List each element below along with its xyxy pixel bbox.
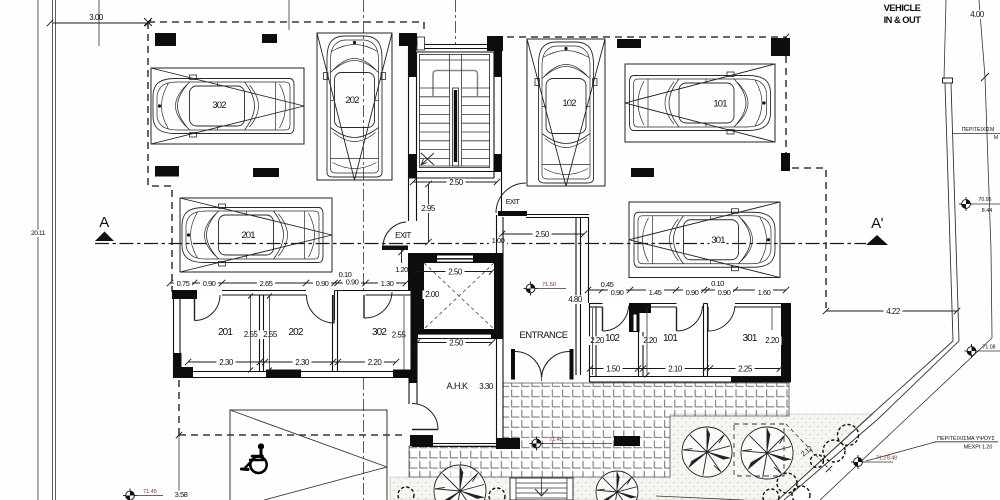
svg-text:302: 302 <box>372 327 387 338</box>
svg-text:EXIT: EXIT <box>506 199 521 206</box>
svg-text:2.20: 2.20 <box>643 336 658 345</box>
svg-text:2.10: 2.10 <box>668 365 683 374</box>
svg-text:2.65: 2.65 <box>260 279 273 288</box>
svg-text:ΠΕΡΙΤΕΙΧΙΣΜ: ΠΕΡΙΤΕΙΧΙΣΜ <box>962 127 995 133</box>
svg-text:2.30: 2.30 <box>219 358 234 367</box>
svg-text:A': A' <box>871 215 884 232</box>
svg-text:ΠΕΡΙΤΕΙΧΙΣΜΑ ΥΨΟΥΣ: ΠΕΡΙΤΕΙΧΙΣΜΑ ΥΨΟΥΣ <box>937 436 995 442</box>
svg-text:0.90: 0.90 <box>611 288 624 297</box>
svg-text:IN & OUT: IN & OUT <box>884 15 922 25</box>
svg-text:71.45: 71.45 <box>143 489 157 495</box>
svg-text:2.30: 2.30 <box>295 358 310 367</box>
svg-text:101: 101 <box>663 333 678 344</box>
svg-text:1.20: 1.20 <box>395 265 408 274</box>
svg-text:70.95: 70.95 <box>979 197 992 203</box>
svg-text:1.45: 1.45 <box>649 288 662 297</box>
svg-text:1.60: 1.60 <box>758 288 771 297</box>
svg-text:1.30: 1.30 <box>381 279 394 288</box>
svg-text:4.00: 4.00 <box>970 10 985 19</box>
svg-text:EXIT: EXIT <box>395 231 411 240</box>
svg-text:2.00: 2.00 <box>425 290 440 299</box>
svg-text:3.30: 3.30 <box>479 382 494 391</box>
svg-text:2.50: 2.50 <box>535 230 550 239</box>
svg-text:102: 102 <box>605 333 620 344</box>
svg-text:0.90: 0.90 <box>718 288 731 297</box>
svg-text:4.22: 4.22 <box>886 307 901 316</box>
svg-text:4.80: 4.80 <box>568 295 583 304</box>
svg-text:0.90: 0.90 <box>686 288 699 297</box>
svg-text:3.00: 3.00 <box>89 13 104 22</box>
svg-text:2.55: 2.55 <box>244 330 259 339</box>
svg-text:ENTRANCE: ENTRANCE <box>519 330 567 341</box>
svg-text:2.25: 2.25 <box>738 365 753 374</box>
svg-text:2.50: 2.50 <box>449 339 464 348</box>
svg-text:301: 301 <box>743 333 758 344</box>
svg-text:0.90: 0.90 <box>203 279 216 288</box>
svg-text:202: 202 <box>289 327 304 338</box>
svg-text:71.2: 71.2 <box>876 456 886 462</box>
svg-text:202: 202 <box>345 95 359 106</box>
svg-text:20.11: 20.11 <box>31 230 46 237</box>
svg-text:302: 302 <box>212 100 226 111</box>
svg-text:201: 201 <box>241 230 255 241</box>
svg-text:A.H.K: A.H.K <box>446 381 468 391</box>
svg-text:1.50: 1.50 <box>606 365 621 374</box>
svg-text:2.95: 2.95 <box>421 204 436 213</box>
svg-text:ΜΕΧΡΙ 1.20: ΜΕΧΡΙ 1.20 <box>964 445 993 451</box>
svg-text:3.58: 3.58 <box>175 490 188 499</box>
svg-text:2.55: 2.55 <box>263 330 278 339</box>
svg-text:8.48: 8.48 <box>887 456 897 462</box>
svg-text:71.45: 71.45 <box>549 437 563 443</box>
svg-text:102: 102 <box>562 98 576 109</box>
svg-text:2.20: 2.20 <box>368 358 383 367</box>
svg-text:0.90: 0.90 <box>346 278 359 287</box>
svg-text:71.50: 71.50 <box>542 282 556 288</box>
svg-text:301: 301 <box>711 235 725 246</box>
svg-text:0.10: 0.10 <box>711 279 724 288</box>
svg-text:0.90: 0.90 <box>316 279 329 288</box>
svg-text:A: A <box>99 214 109 231</box>
svg-text:Μ: Μ <box>994 135 998 141</box>
svg-text:2.50: 2.50 <box>448 268 463 277</box>
svg-text:VEHICLE: VEHICLE <box>884 3 921 13</box>
svg-text:71.08: 71.08 <box>983 345 996 351</box>
svg-text:2.50: 2.50 <box>449 178 464 187</box>
svg-text:2.20: 2.20 <box>765 336 780 345</box>
svg-text:8.44: 8.44 <box>982 208 993 214</box>
svg-text:201: 201 <box>218 327 233 338</box>
svg-text:0.75: 0.75 <box>177 279 190 288</box>
svg-text:101: 101 <box>713 99 727 110</box>
